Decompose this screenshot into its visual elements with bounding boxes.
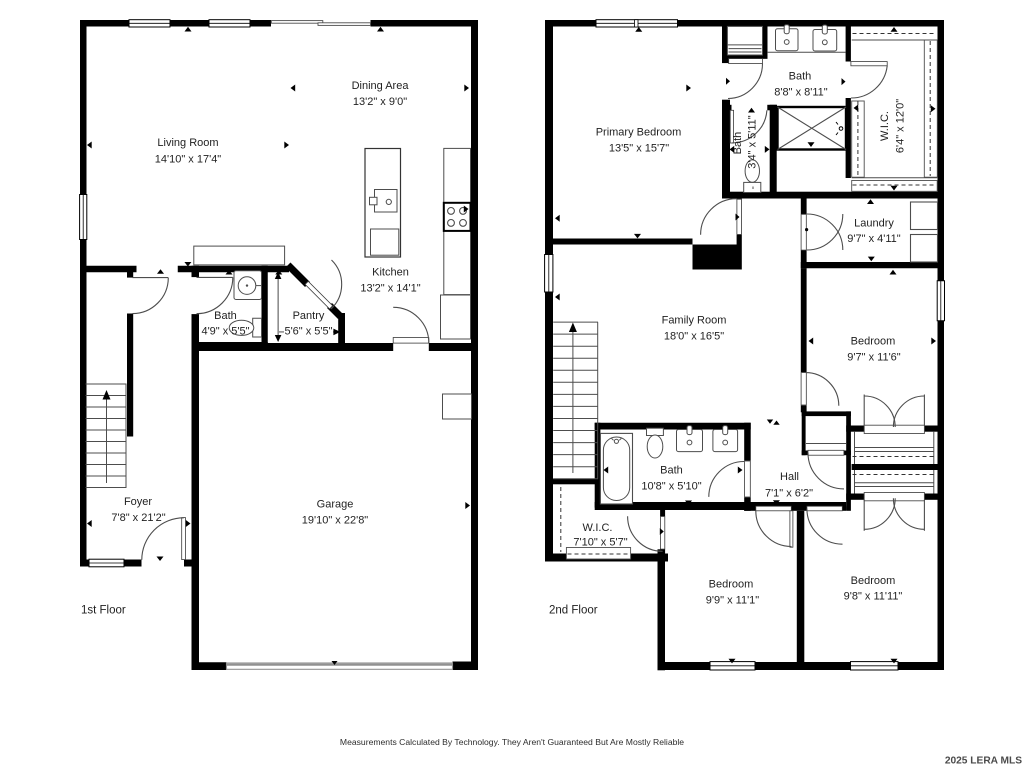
svg-text:Garage: Garage	[317, 499, 354, 511]
svg-text:4'9" x 5'5": 4'9" x 5'5"	[201, 326, 249, 338]
svg-text:9'7" x 4'11": 9'7" x 4'11"	[847, 233, 900, 245]
svg-text:9'8" x 11'11": 9'8" x 11'11"	[844, 591, 903, 603]
svg-text:Bedroom: Bedroom	[709, 579, 754, 591]
svg-text:1st Floor: 1st Floor	[81, 605, 126, 617]
svg-text:13'2" x 14'1": 13'2" x 14'1"	[360, 282, 420, 294]
svg-text:18'0" x 16'5": 18'0" x 16'5"	[664, 331, 724, 343]
svg-text:2nd Floor: 2nd Floor	[549, 605, 598, 617]
svg-text:9'7" x 11'6": 9'7" x 11'6"	[847, 351, 900, 363]
svg-text:W.I.C.: W.I.C.	[879, 111, 891, 141]
svg-text:Hall: Hall	[780, 471, 799, 483]
svg-text:Laundry: Laundry	[854, 218, 894, 230]
svg-text:13'5" x 15'7": 13'5" x 15'7"	[609, 143, 669, 155]
svg-text:7'1" x 6'2": 7'1" x 6'2"	[765, 487, 813, 499]
svg-text:14'10" x 17'4": 14'10" x 17'4"	[155, 153, 222, 165]
svg-text:10'8" x 5'10": 10'8" x 5'10"	[641, 481, 701, 493]
svg-text:7'8" x 21'2": 7'8" x 21'2"	[111, 512, 165, 524]
svg-text:Bath: Bath	[214, 310, 237, 322]
svg-text:5'6" x 5'5": 5'6" x 5'5"	[284, 326, 332, 338]
svg-text:19'10" x 22'8": 19'10" x 22'8"	[302, 515, 369, 527]
svg-text:Bedroom: Bedroom	[851, 336, 896, 348]
svg-text:Living Room: Living Room	[157, 137, 218, 149]
svg-text:8'8" x 8'11": 8'8" x 8'11"	[774, 87, 827, 99]
svg-text:3'4" x 5'11": 3'4" x 5'11"	[747, 115, 759, 168]
svg-text:9'9" x 11'1": 9'9" x 11'1"	[706, 594, 759, 606]
svg-text:Bedroom: Bedroom	[851, 575, 896, 587]
svg-text:Dining Area: Dining Area	[352, 80, 410, 92]
svg-text:13'2" x 9'0": 13'2" x 9'0"	[353, 96, 407, 108]
svg-text:Bath: Bath	[660, 465, 683, 477]
svg-text:2025 LERA MLS: 2025 LERA MLS	[945, 756, 1022, 767]
svg-text:Measurements Calculated By Tec: Measurements Calculated By Technology. T…	[340, 737, 684, 747]
svg-text:Bath: Bath	[789, 71, 812, 83]
svg-text:6'4" x 12'0": 6'4" x 12'0"	[895, 99, 907, 153]
svg-text:Family Room: Family Room	[662, 315, 727, 327]
svg-text:Foyer: Foyer	[124, 496, 152, 508]
svg-text:Pantry: Pantry	[293, 310, 325, 322]
svg-text:Primary Bedroom: Primary Bedroom	[596, 127, 682, 139]
svg-text:Kitchen: Kitchen	[372, 266, 409, 278]
svg-text:7'10" x 5'7": 7'10" x 5'7"	[573, 536, 627, 548]
svg-text:W.I.C.: W.I.C.	[583, 522, 613, 534]
